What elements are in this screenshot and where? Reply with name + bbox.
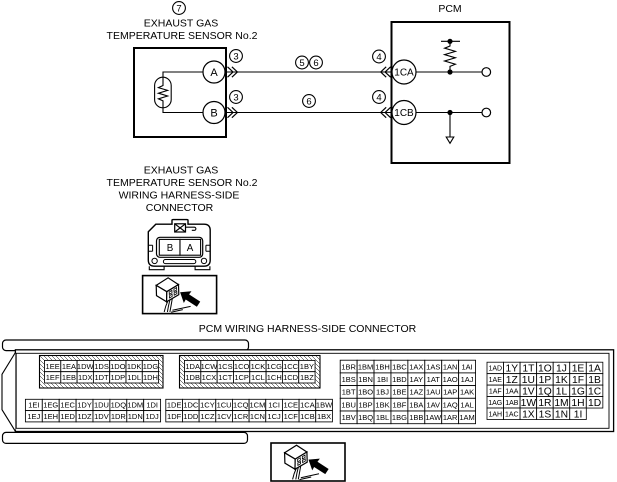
- svg-text:1CG: 1CG: [267, 362, 283, 371]
- svg-text:1V: 1V: [522, 387, 535, 398]
- svg-text:1AI: 1AI: [461, 362, 472, 371]
- svg-text:1BK: 1BK: [375, 400, 389, 409]
- svg-text:1CY: 1CY: [200, 401, 215, 410]
- svg-text:1N: 1N: [555, 409, 568, 420]
- svg-text:1AD: 1AD: [488, 365, 502, 372]
- svg-text:1DJ: 1DJ: [145, 412, 159, 421]
- svg-text:1DZ: 1DZ: [77, 412, 92, 421]
- svg-text:1Y: 1Y: [506, 364, 519, 375]
- svg-text:EXHAUST GAS: EXHAUST GAS: [144, 165, 219, 177]
- svg-text:1BH: 1BH: [375, 362, 390, 371]
- svg-text:1DG: 1DG: [143, 362, 159, 371]
- svg-text:7: 7: [176, 3, 181, 14]
- svg-text:1AL: 1AL: [460, 400, 473, 409]
- svg-text:TEMPERATURE SENSOR No.2: TEMPERATURE SENSOR No.2: [107, 177, 258, 189]
- svg-text:1DR: 1DR: [111, 412, 127, 421]
- svg-text:1CB: 1CB: [394, 108, 414, 119]
- svg-text:B: B: [210, 108, 217, 120]
- svg-text:1EJ: 1EJ: [27, 412, 40, 421]
- svg-text:1DF: 1DF: [167, 412, 182, 421]
- svg-text:1BZ: 1BZ: [300, 373, 314, 382]
- svg-text:1DT: 1DT: [94, 373, 109, 382]
- svg-text:3: 3: [233, 51, 238, 62]
- svg-text:1DW: 1DW: [77, 362, 95, 371]
- svg-text:1CU: 1CU: [217, 401, 232, 410]
- svg-text:1L: 1L: [556, 387, 568, 398]
- svg-text:1BQ: 1BQ: [358, 413, 373, 422]
- svg-text:1BX: 1BX: [317, 412, 331, 421]
- svg-text:1AY: 1AY: [410, 375, 424, 384]
- svg-text:1AN: 1AN: [443, 362, 458, 371]
- svg-text:1AM: 1AM: [459, 413, 474, 422]
- svg-text:1BA: 1BA: [409, 400, 423, 409]
- svg-text:1AV: 1AV: [426, 400, 440, 409]
- svg-text:1CH: 1CH: [267, 373, 282, 382]
- svg-text:1G: 1G: [571, 387, 585, 398]
- svg-text:1J: 1J: [556, 364, 567, 375]
- svg-text:1DV: 1DV: [94, 412, 109, 421]
- svg-text:1M: 1M: [554, 398, 568, 409]
- svg-text:1DK: 1DK: [127, 362, 142, 371]
- svg-text:1CC: 1CC: [283, 362, 299, 371]
- svg-text:1AH: 1AH: [488, 411, 502, 418]
- svg-text:1EF: 1EF: [46, 373, 60, 382]
- svg-text:6: 6: [306, 96, 311, 107]
- svg-text:1Q: 1Q: [538, 387, 552, 398]
- svg-text:1EC: 1EC: [60, 401, 75, 410]
- svg-text:1CL: 1CL: [251, 373, 265, 382]
- svg-text:1AJ: 1AJ: [461, 375, 474, 384]
- svg-text:1CF: 1CF: [284, 412, 299, 421]
- svg-text:1AK: 1AK: [460, 388, 474, 397]
- svg-text:1BJ: 1BJ: [376, 388, 389, 397]
- svg-text:1DD: 1DD: [183, 412, 199, 421]
- svg-text:1BG: 1BG: [392, 413, 407, 422]
- svg-text:1CQ: 1CQ: [233, 401, 249, 410]
- svg-text:1CD: 1CD: [283, 373, 299, 382]
- svg-text:1BI: 1BI: [377, 375, 388, 384]
- svg-text:PCM WIRING HARNESS-SIDE CONNEC: PCM WIRING HARNESS-SIDE CONNECTOR: [199, 323, 417, 335]
- svg-text:1B: 1B: [588, 375, 601, 386]
- svg-text:1EG: 1EG: [43, 401, 58, 410]
- svg-text:1AA: 1AA: [505, 388, 519, 395]
- svg-text:1CP: 1CP: [234, 373, 249, 382]
- svg-text:1DX: 1DX: [78, 373, 93, 382]
- svg-text:1BN: 1BN: [358, 375, 373, 384]
- svg-text:WIRING HARNESS-SIDE: WIRING HARNESS-SIDE: [119, 190, 240, 202]
- svg-text:1CN: 1CN: [250, 412, 265, 421]
- svg-text:1DC: 1DC: [183, 401, 199, 410]
- svg-text:1O: 1O: [538, 364, 552, 375]
- svg-text:1Z: 1Z: [506, 375, 518, 386]
- svg-text:CONNECTOR: CONNECTOR: [146, 202, 214, 214]
- svg-text:1EI: 1EI: [28, 401, 39, 410]
- svg-text:1DB: 1DB: [185, 373, 200, 382]
- svg-text:1AS: 1AS: [426, 362, 440, 371]
- svg-text:1CZ: 1CZ: [200, 412, 215, 421]
- svg-text:4: 4: [376, 92, 381, 103]
- svg-text:1U: 1U: [522, 375, 535, 386]
- svg-text:1CJ: 1CJ: [267, 412, 281, 421]
- svg-text:1BB: 1BB: [409, 413, 423, 422]
- svg-text:1AO: 1AO: [443, 375, 458, 384]
- svg-text:1EE: 1EE: [46, 362, 60, 371]
- svg-text:1DE: 1DE: [167, 401, 182, 410]
- svg-text:1DI: 1DI: [146, 401, 158, 410]
- svg-text:1DS: 1DS: [94, 362, 109, 371]
- svg-text:1AP: 1AP: [443, 388, 457, 397]
- svg-text:1DP: 1DP: [111, 373, 126, 382]
- svg-text:1ED: 1ED: [60, 412, 75, 421]
- svg-text:3: 3: [233, 92, 238, 103]
- svg-text:6: 6: [313, 58, 318, 69]
- svg-text:1BF: 1BF: [393, 400, 407, 409]
- svg-text:1CA: 1CA: [394, 68, 414, 79]
- svg-text:1DA: 1DA: [185, 362, 200, 371]
- svg-text:1DU: 1DU: [94, 401, 109, 410]
- svg-text:1DN: 1DN: [128, 412, 143, 421]
- svg-text:1DQ: 1DQ: [111, 401, 127, 410]
- svg-text:PCM: PCM: [438, 3, 461, 15]
- svg-text:1D: 1D: [588, 398, 601, 409]
- svg-text:1AW: 1AW: [425, 413, 442, 422]
- svg-text:1H: 1H: [571, 398, 584, 409]
- svg-text:1BE: 1BE: [392, 388, 406, 397]
- svg-text:1DY: 1DY: [77, 401, 92, 410]
- svg-text:A: A: [210, 67, 218, 79]
- svg-text:1S: 1S: [539, 409, 552, 420]
- svg-text:1EB: 1EB: [62, 373, 76, 382]
- svg-text:1T: 1T: [522, 364, 535, 375]
- svg-text:1CA: 1CA: [300, 401, 315, 410]
- svg-text:1EH: 1EH: [43, 412, 58, 421]
- svg-text:1AC: 1AC: [505, 411, 519, 418]
- svg-text:1BU: 1BU: [341, 400, 356, 409]
- svg-text:1AU: 1AU: [426, 388, 441, 397]
- svg-text:1AR: 1AR: [443, 413, 458, 422]
- svg-text:1DM: 1DM: [127, 401, 143, 410]
- svg-text:1E: 1E: [572, 364, 585, 375]
- svg-text:1BS: 1BS: [342, 375, 356, 384]
- svg-text:1DL: 1DL: [127, 373, 141, 382]
- svg-text:1X: 1X: [522, 409, 535, 420]
- svg-text:1A: 1A: [588, 364, 601, 375]
- svg-text:1BT: 1BT: [342, 388, 356, 397]
- svg-text:1CO: 1CO: [234, 362, 250, 371]
- svg-text:1W: 1W: [521, 398, 537, 409]
- svg-text:1AF: 1AF: [489, 388, 502, 395]
- svg-text:EXHAUST GAS: EXHAUST GAS: [144, 18, 219, 30]
- svg-text:1AZ: 1AZ: [409, 388, 423, 397]
- svg-text:1CT: 1CT: [218, 373, 233, 382]
- svg-text:B: B: [167, 243, 174, 254]
- svg-text:5: 5: [299, 58, 304, 69]
- svg-text:1BC: 1BC: [392, 362, 407, 371]
- svg-text:1CW: 1CW: [201, 362, 219, 371]
- svg-text:1CV: 1CV: [217, 412, 232, 421]
- svg-text:1BV: 1BV: [342, 413, 356, 422]
- svg-text:1BD: 1BD: [392, 375, 407, 384]
- svg-text:1BP: 1BP: [358, 400, 372, 409]
- svg-text:1DO: 1DO: [110, 362, 126, 371]
- svg-text:1AX: 1AX: [409, 362, 423, 371]
- svg-text:1AE: 1AE: [489, 377, 503, 384]
- svg-text:A: A: [187, 243, 194, 254]
- svg-text:1CR: 1CR: [233, 412, 249, 421]
- svg-text:1AB: 1AB: [505, 400, 519, 407]
- svg-text:1AQ: 1AQ: [443, 400, 458, 409]
- svg-text:1CK: 1CK: [251, 362, 266, 371]
- svg-text:1CX: 1CX: [202, 373, 217, 382]
- svg-text:1EA: 1EA: [62, 362, 76, 371]
- svg-text:1BM: 1BM: [358, 362, 373, 371]
- svg-text:1I: 1I: [574, 409, 583, 420]
- svg-text:1CI: 1CI: [268, 401, 280, 410]
- svg-text:1BO: 1BO: [358, 388, 373, 397]
- svg-text:1AG: 1AG: [488, 400, 502, 407]
- svg-text:1AT: 1AT: [427, 375, 441, 384]
- svg-text:1CM: 1CM: [250, 401, 266, 410]
- svg-text:1R: 1R: [538, 398, 551, 409]
- svg-text:1CE: 1CE: [283, 401, 298, 410]
- svg-text:1DH: 1DH: [143, 373, 158, 382]
- svg-text:1BY: 1BY: [300, 362, 314, 371]
- svg-text:1BL: 1BL: [376, 413, 389, 422]
- svg-text:1K: 1K: [555, 375, 568, 386]
- svg-text:1CS: 1CS: [218, 362, 233, 371]
- svg-text:1BR: 1BR: [341, 362, 356, 371]
- svg-text:4: 4: [376, 52, 381, 63]
- svg-text:TEMPERATURE SENSOR No.2: TEMPERATURE SENSOR No.2: [107, 30, 258, 42]
- svg-text:1CB: 1CB: [300, 412, 315, 421]
- svg-text:1C: 1C: [588, 387, 602, 398]
- svg-text:1F: 1F: [572, 375, 584, 386]
- svg-text:1P: 1P: [539, 375, 552, 386]
- svg-text:1BW: 1BW: [316, 401, 333, 410]
